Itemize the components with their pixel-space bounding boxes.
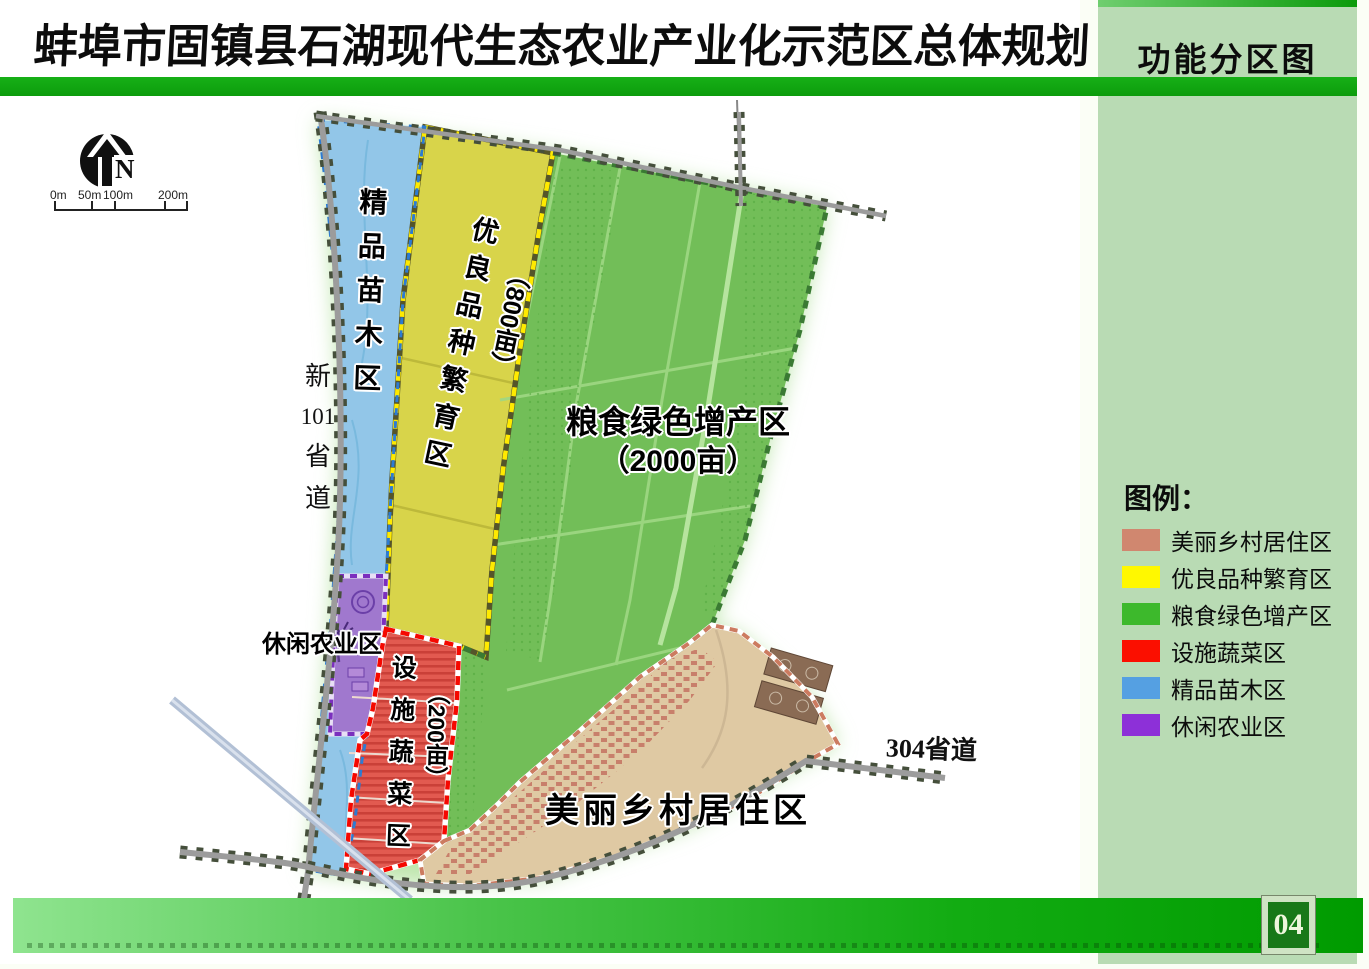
sheet-name: 功能分区图 — [1098, 33, 1357, 81]
scale-200m: 200m — [158, 188, 188, 202]
legend-item-village: 美丽乡村居住区 — [1122, 527, 1332, 553]
legend-item-leisure: 休闲农业区 — [1122, 712, 1286, 738]
scale-0m: 0m — [50, 188, 67, 202]
legend-swatch-grain — [1122, 603, 1160, 625]
zone-label-village: 美丽乡村居住区 — [545, 783, 811, 832]
legend-item-nursery: 精品苗木区 — [1122, 675, 1286, 701]
legend-item-grain: 粮食绿色增产区 — [1122, 601, 1332, 627]
legend-item-vegetable: 设施蔬菜区 — [1122, 638, 1286, 664]
zone-label-grain: 粮食绿色增产区 （2000亩） — [528, 402, 828, 482]
header-divider-bar — [0, 77, 1357, 96]
scale-tick — [91, 201, 93, 209]
road-label-provincial-304: 304省道 — [885, 727, 977, 767]
legend-swatch-village — [1122, 529, 1160, 551]
scale-bar: 0m 50m 100m 200m — [48, 188, 208, 214]
scale-tick — [54, 201, 56, 209]
legend-swatch-seed — [1122, 566, 1160, 588]
legend-title: 图例： — [1124, 477, 1208, 517]
scale-line — [54, 203, 188, 211]
road-label-provincial-101: 新 101 省 道 — [299, 362, 337, 514]
page-title: 蚌埠市固镇县石湖现代生态农业产业化示范区总体规划 — [32, 9, 1081, 76]
legend-swatch-vegetable — [1122, 640, 1160, 662]
footer-bar — [13, 898, 1363, 953]
sidebar: 功能分区图 图例： 美丽乡村居住区 优良品种繁育区 粮食绿色增产区 设施蔬菜区 … — [1098, 0, 1357, 964]
legend-swatch-leisure — [1122, 714, 1160, 736]
zone-label-leisure: 休闲农业区 — [262, 624, 382, 659]
scale-tick — [164, 201, 166, 209]
legend-item-seed: 优良品种繁育区 — [1122, 564, 1332, 590]
zone-label-vegetable: 设施蔬菜区 （200亩） — [377, 654, 633, 873]
north-compass: N — [80, 128, 138, 192]
scale-tick — [186, 201, 188, 209]
sidebar-top-strip — [1098, 0, 1357, 7]
legend-swatch-nursery — [1122, 677, 1160, 699]
page-number-box: 04 — [1261, 895, 1316, 955]
scale-50m: 50m — [78, 188, 101, 202]
scale-100m: 100m — [103, 188, 133, 202]
scale-tick — [114, 201, 116, 209]
page-number: 04 — [1268, 902, 1309, 948]
north-label: N — [115, 154, 135, 185]
